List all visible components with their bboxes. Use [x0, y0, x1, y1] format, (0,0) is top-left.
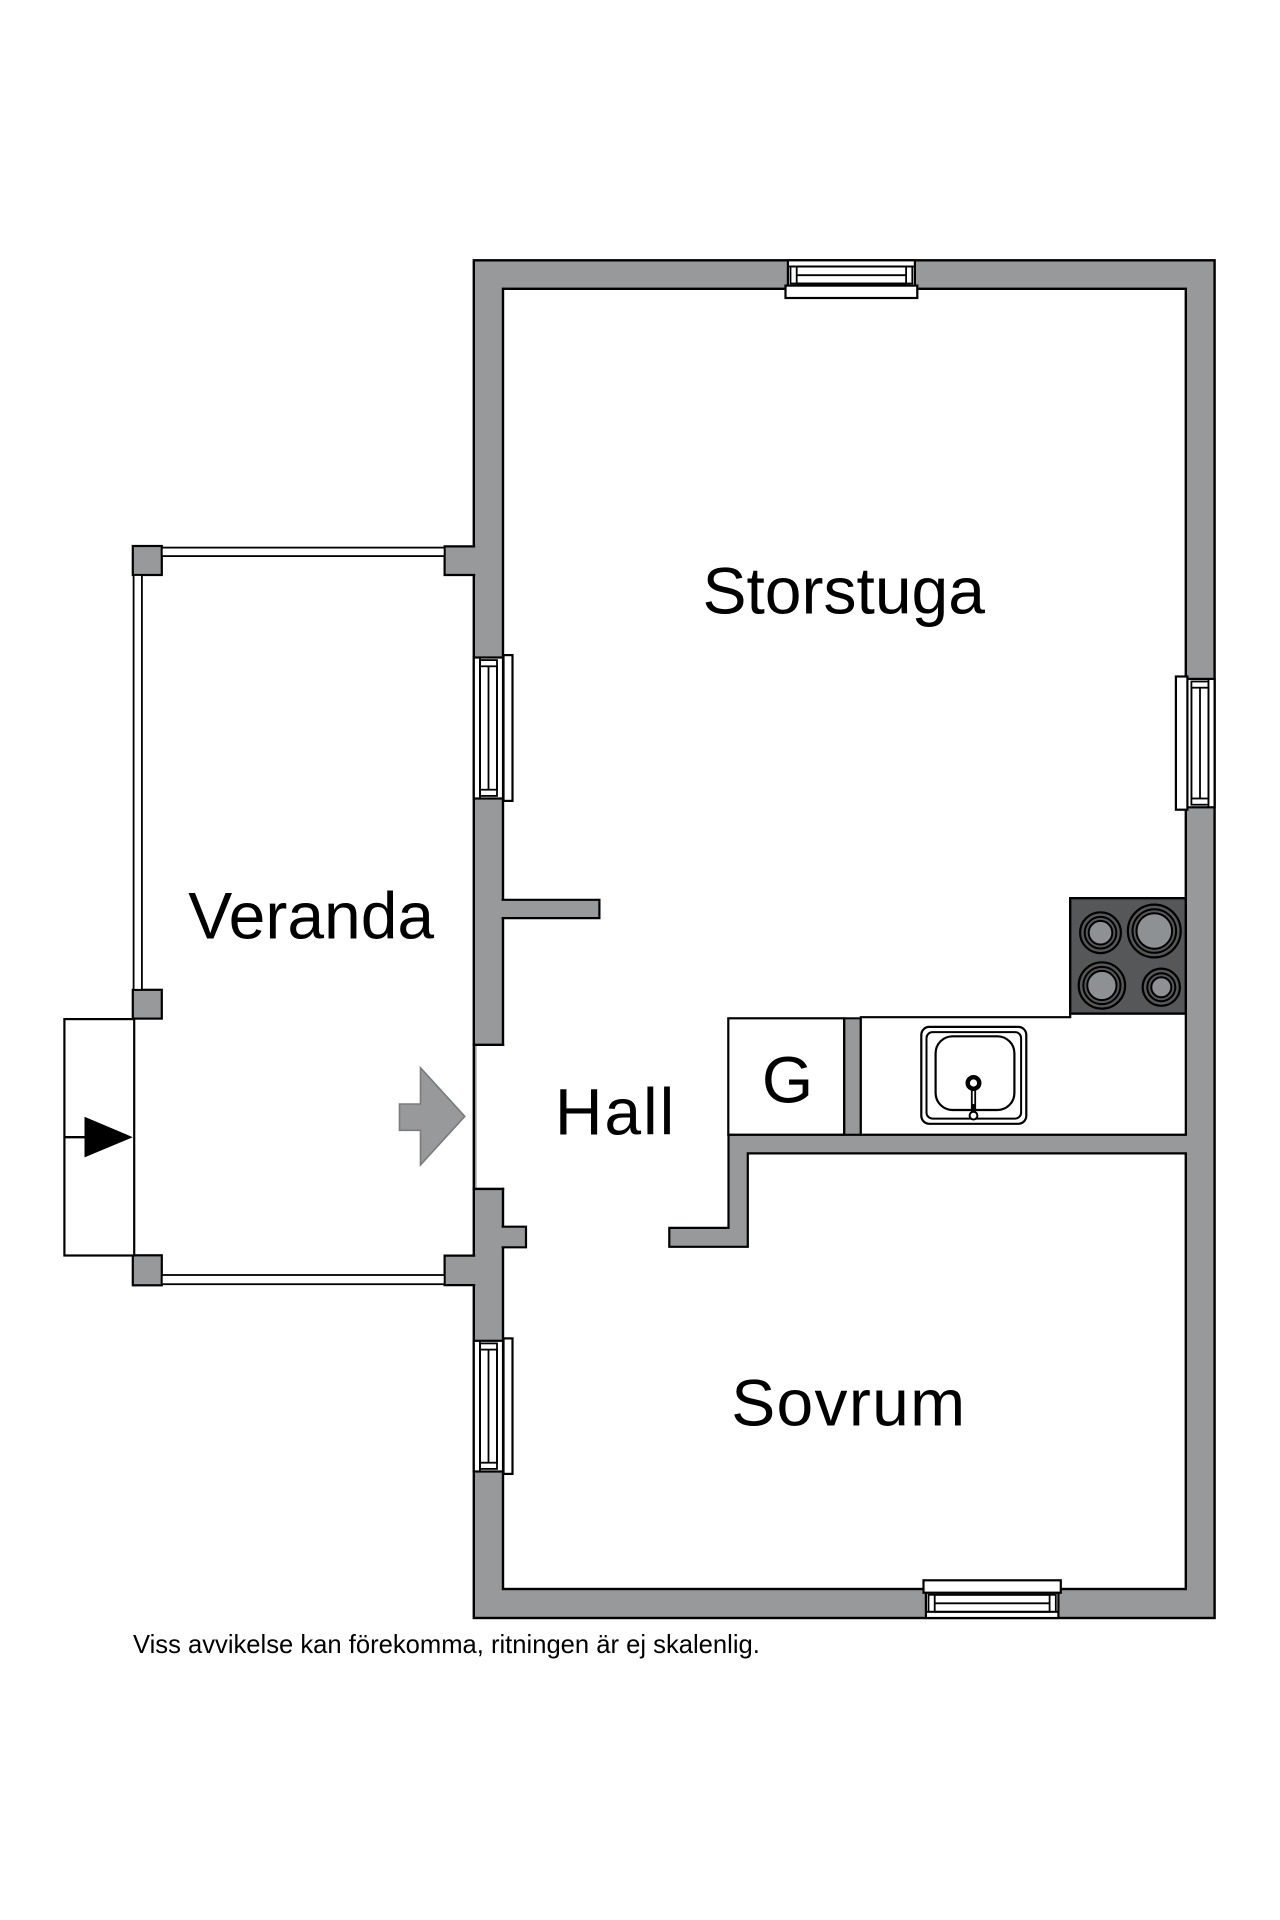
- svg-text:Hall: Hall: [555, 1075, 676, 1149]
- svg-text:Sovrum: Sovrum: [731, 1366, 966, 1440]
- svg-text:G: G: [762, 1043, 813, 1117]
- svg-text:Storstuga: Storstuga: [702, 554, 985, 628]
- svg-text:Veranda: Veranda: [188, 879, 434, 953]
- svg-text:Viss avvikelse kan förekomma,: Viss avvikelse kan förekomma, ritningen …: [133, 1631, 760, 1659]
